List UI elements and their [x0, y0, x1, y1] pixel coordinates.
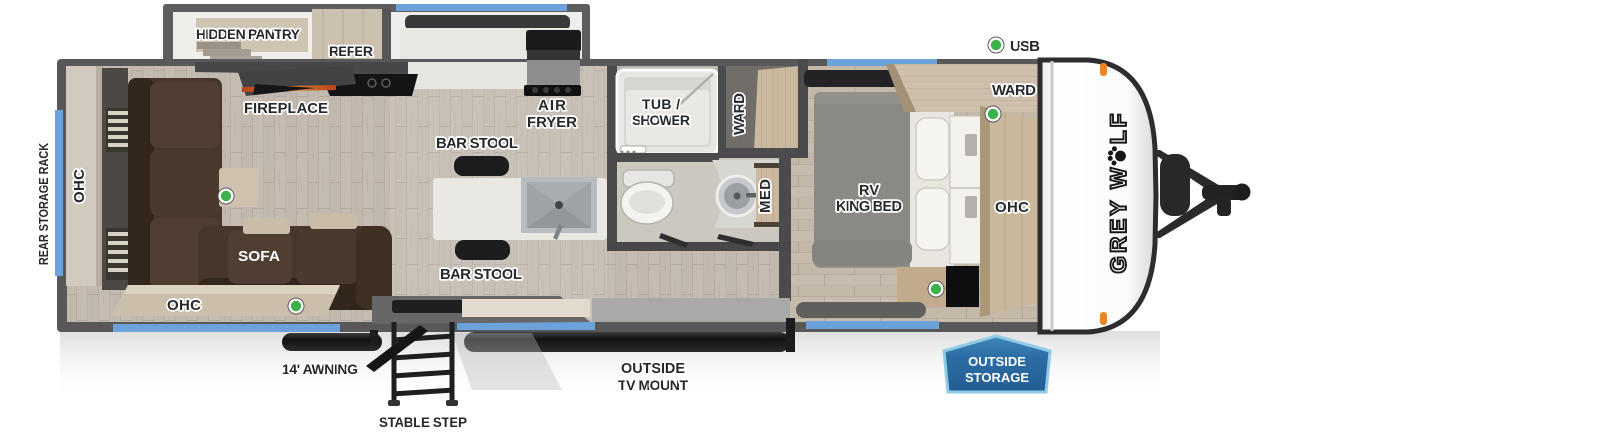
svg-text:TUB /: TUB / — [642, 96, 680, 112]
svg-text:OHC: OHC — [167, 297, 201, 314]
svg-text:SOFA: SOFA — [238, 248, 280, 265]
svg-text:STORAGE: STORAGE — [965, 370, 1029, 385]
svg-text:TV MOUNT: TV MOUNT — [618, 377, 688, 393]
svg-text:GREY WOLF: GREY WOLF — [1106, 111, 1131, 274]
svg-text:USB: USB — [1010, 38, 1040, 55]
svg-text:FRYER: FRYER — [527, 114, 577, 131]
svg-text:WARD: WARD — [992, 82, 1036, 99]
svg-text:OHC: OHC — [71, 169, 88, 203]
svg-text:AIR: AIR — [538, 97, 566, 114]
svg-text:14' AWNING: 14' AWNING — [282, 361, 358, 377]
svg-text:MED: MED — [757, 179, 774, 213]
svg-text:FIREPLACE: FIREPLACE — [244, 100, 328, 117]
svg-text:OHC: OHC — [995, 199, 1029, 216]
svg-text:OUTSIDE: OUTSIDE — [968, 354, 1026, 369]
svg-text:KING BED: KING BED — [836, 199, 902, 215]
svg-text:OUTSIDE: OUTSIDE — [621, 361, 685, 377]
svg-text:STABLE STEP: STABLE STEP — [379, 415, 467, 430]
svg-text:REFER: REFER — [329, 43, 373, 59]
svg-text:RV: RV — [859, 183, 879, 199]
svg-text:WARD: WARD — [731, 93, 748, 135]
svg-text:REAR STORAGE RACK: REAR STORAGE RACK — [36, 143, 51, 266]
svg-text:HIDDEN PANTRY: HIDDEN PANTRY — [196, 26, 301, 42]
svg-text:BAR STOOL: BAR STOOL — [436, 135, 518, 152]
svg-text:BAR STOOL: BAR STOOL — [440, 266, 522, 283]
svg-text:SHOWER: SHOWER — [632, 112, 690, 128]
